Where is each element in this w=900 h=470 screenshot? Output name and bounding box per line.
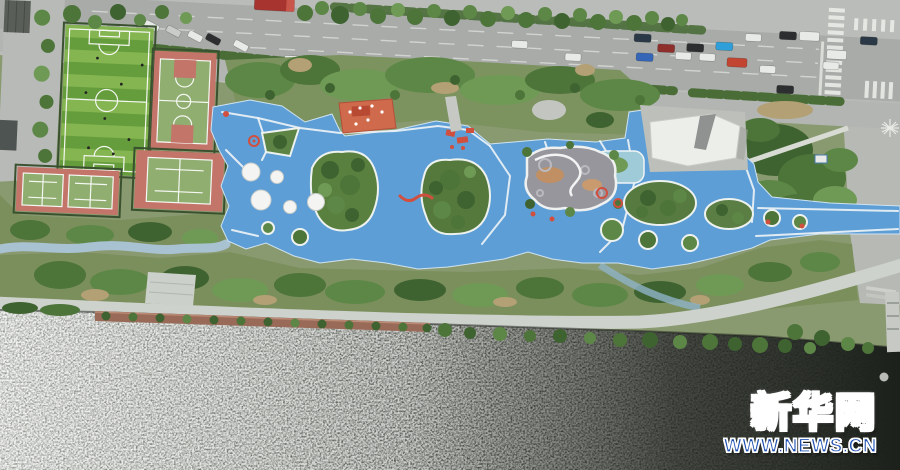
- buoy: [880, 373, 889, 382]
- orange-building: [339, 99, 396, 133]
- basketball-court: [148, 48, 218, 154]
- watermark-url-text: WWW.NEWS.CN: [724, 434, 877, 460]
- watermark-brand-text: 新华网: [724, 392, 877, 434]
- tennis-court: [132, 148, 227, 214]
- jogging-path: [0, 244, 226, 250]
- small-hut: [815, 155, 827, 163]
- plaza: [532, 100, 566, 120]
- building-roof: [0, 120, 18, 151]
- aerial-photo-riverside-park: 新华网 WWW.NEWS.CN: [0, 0, 900, 470]
- connector-plaza: [145, 272, 196, 306]
- mini-courts: [14, 165, 122, 218]
- watermark: 新华网 WWW.NEWS.CN: [724, 392, 877, 460]
